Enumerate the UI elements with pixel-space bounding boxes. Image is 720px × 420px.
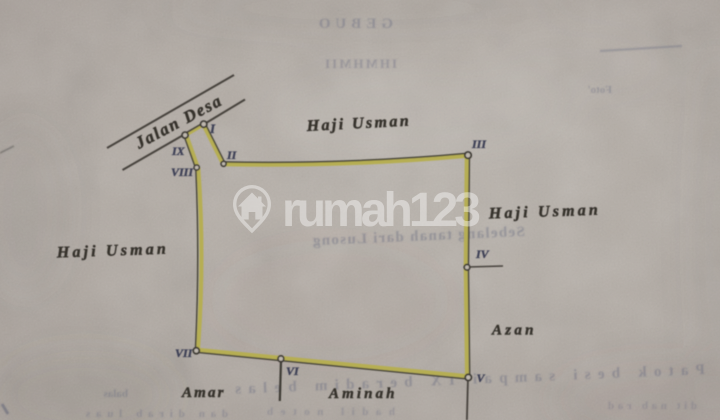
svg-text:III: III: [471, 137, 487, 151]
svg-text:dit nab rad: dit nab rad: [607, 400, 697, 412]
svg-text:VII: VII: [175, 346, 194, 360]
svg-text:IX: IX: [171, 144, 186, 158]
svg-text:Aminah: Aminah: [328, 386, 396, 402]
svg-text:VIII: VIII: [171, 165, 194, 179]
svg-text:I: I: [209, 121, 216, 136]
svg-text:IV: IV: [475, 247, 490, 261]
svg-text:V: V: [477, 371, 486, 385]
svg-text:VI: VI: [286, 364, 300, 378]
svg-text:balas: balas: [103, 388, 128, 400]
svg-text:Amar: Amar: [181, 385, 225, 401]
svg-text:II: II: [226, 148, 238, 162]
svg-text:rumah123: rumah123: [282, 184, 482, 237]
svg-text:IHMHMII: IHMHMII: [323, 56, 397, 71]
svg-text:GEBUO: GEBUO: [314, 16, 393, 32]
svg-text:hadil noteb: hadil noteb: [265, 406, 395, 418]
svg-text:Foto': Foto': [588, 84, 612, 96]
